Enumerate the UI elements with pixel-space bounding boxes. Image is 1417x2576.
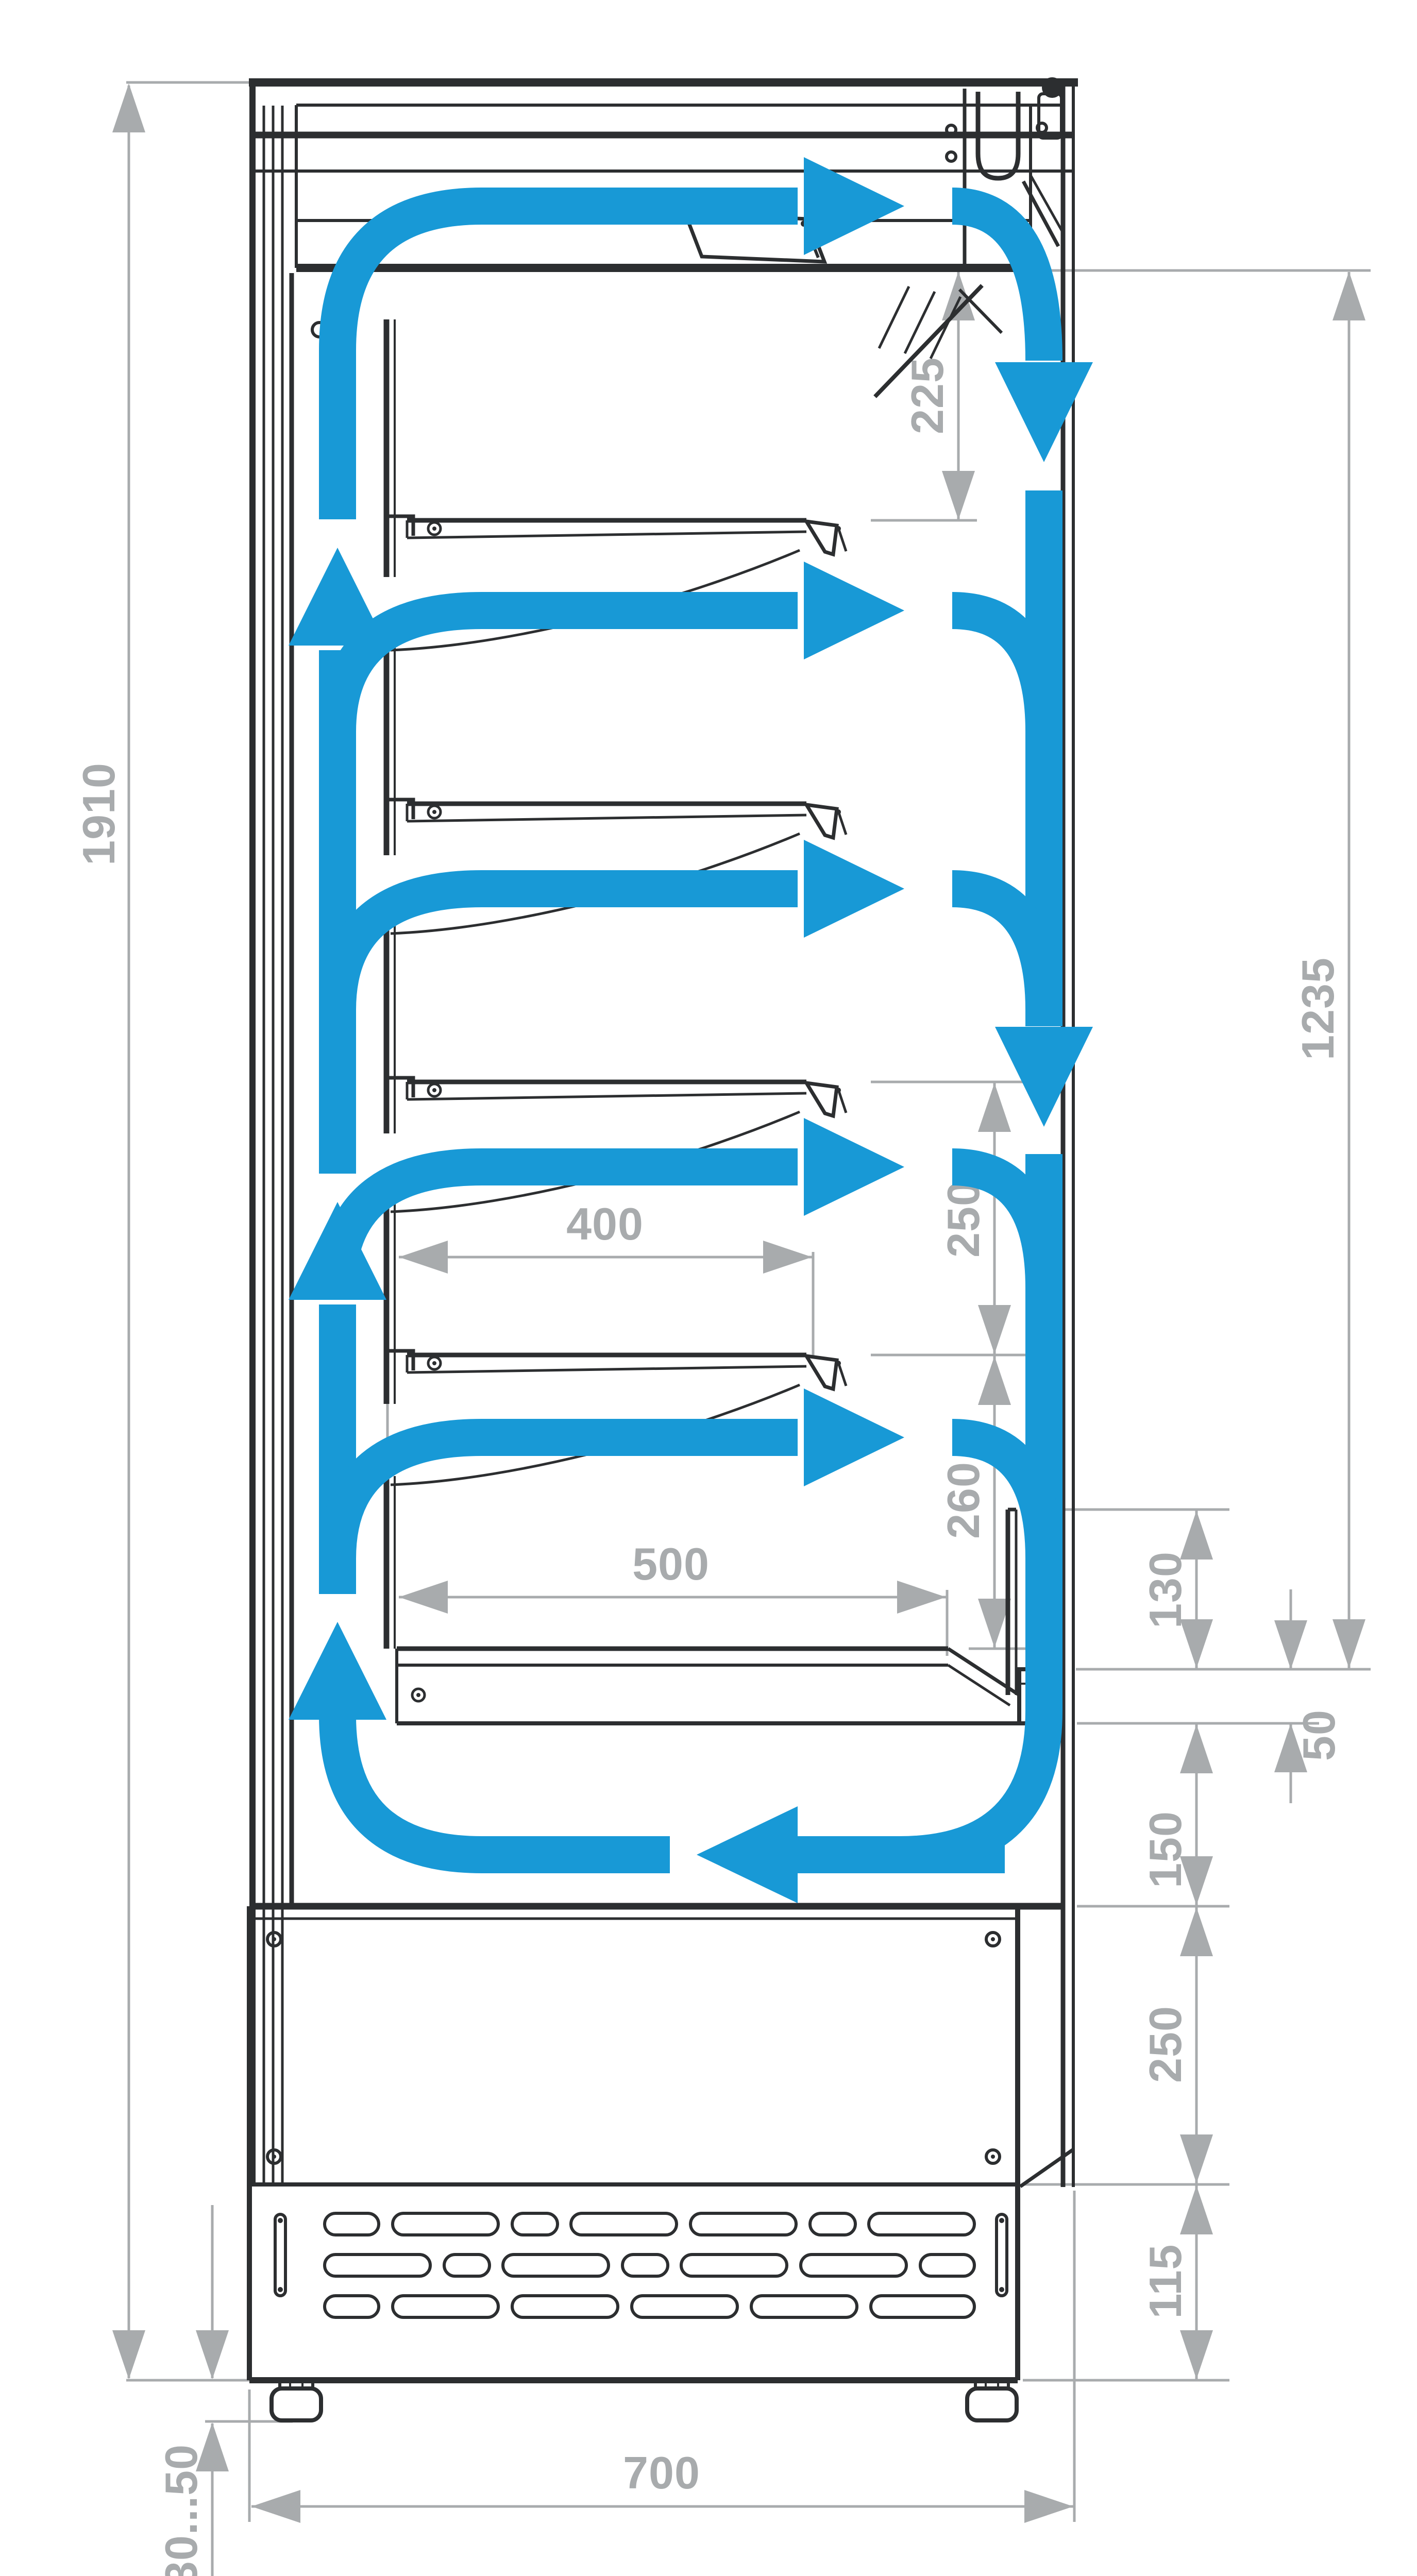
dim-label-bottom-gap: 260 xyxy=(938,1462,989,1539)
dim-label-grille-height: 115 xyxy=(1140,2244,1191,2319)
return-arrowhead xyxy=(697,1806,798,1903)
vent-slots xyxy=(325,2213,974,2317)
dim-label-shelf-depth: 400 xyxy=(566,1198,644,1249)
dim-label-shelf-pitch: 250 xyxy=(938,1180,989,1258)
dim-label-riser-height: 130 xyxy=(1140,1551,1191,1629)
foot-left xyxy=(272,2380,321,2420)
shelf-stream-2 xyxy=(338,840,1044,1010)
dim-riser-height: 130 xyxy=(1140,1511,1213,1668)
curtain-arrowhead-mid xyxy=(995,1027,1093,1127)
bottom-deck xyxy=(397,1510,1063,1723)
shelf-3 xyxy=(387,1078,846,1212)
riser-arrowhead-low xyxy=(289,1622,386,1720)
foot-right xyxy=(967,2380,1017,2420)
shelf-2 xyxy=(387,800,846,934)
dim-label-bumper-height: 50 xyxy=(1293,1709,1344,1761)
dim-grille-height: 115 xyxy=(1140,2185,1213,2379)
dim-total-depth: 700 xyxy=(251,2447,1073,2523)
machine-compartment xyxy=(249,1906,1063,2184)
dim-label-total-height: 1910 xyxy=(73,762,124,866)
dim-total-height: 1910 xyxy=(73,83,145,2379)
back-wall xyxy=(252,86,292,2184)
dim-label-total-depth: 700 xyxy=(623,2447,700,2498)
dim-label-deck-depth: 500 xyxy=(632,1538,710,1589)
dim-label-foot-adjust: 30...50 xyxy=(156,2444,207,2576)
technical-drawing-page: 1910 225 1235 250 260 xyxy=(0,0,1417,2576)
shelf-4 xyxy=(387,1351,846,1485)
vent-grille-panel xyxy=(249,2184,1018,2380)
dim-label-interior-height: 1235 xyxy=(1292,957,1343,1060)
dim-deck-depth: 500 xyxy=(399,1538,946,1614)
dim-label-top-gap: 225 xyxy=(902,357,953,434)
curtain-arrowhead-top xyxy=(995,362,1093,462)
dim-shelf-depth: 400 xyxy=(399,1198,812,1274)
dim-interior-height: 1235 xyxy=(1292,272,1365,1668)
machine-panel-screws xyxy=(267,1933,1000,2163)
return-to-riser-curve xyxy=(338,1716,670,1855)
dim-foot-adjust: 30...50 xyxy=(156,2205,229,2576)
dim-top-gap: 225 xyxy=(902,272,975,520)
dim-shelf-pitch: 250 xyxy=(938,1083,1011,1354)
dim-well-height: 150 xyxy=(1140,1724,1213,1905)
dimension-annotations: 1910 225 1235 250 260 xyxy=(73,82,1371,2576)
dim-machine-height: 250 xyxy=(1140,1907,1213,2183)
dim-label-machine-height: 250 xyxy=(1140,2006,1191,2083)
dim-label-well-height: 150 xyxy=(1140,1811,1191,1888)
airflow-arrows xyxy=(289,157,1093,1903)
dim-bottom-gap: 260 xyxy=(938,1356,1011,1648)
